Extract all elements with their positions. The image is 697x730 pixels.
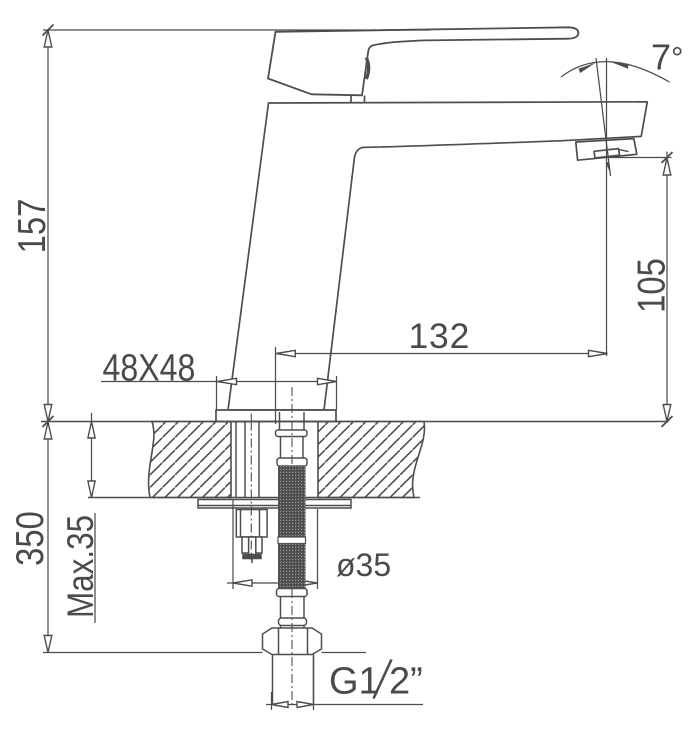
svg-text:157: 157 [9, 199, 53, 254]
svg-text:G1: G1 [329, 661, 380, 703]
svg-text:ø35: ø35 [336, 547, 391, 583]
svg-text:132: 132 [409, 316, 471, 356]
svg-text:105: 105 [629, 258, 673, 313]
svg-text:7°: 7° [651, 37, 683, 78]
svg-text:Max.35: Max.35 [61, 515, 102, 618]
svg-text:48X48: 48X48 [103, 347, 196, 389]
svg-text:2”: 2” [389, 661, 423, 703]
svg-text:350: 350 [7, 511, 51, 566]
